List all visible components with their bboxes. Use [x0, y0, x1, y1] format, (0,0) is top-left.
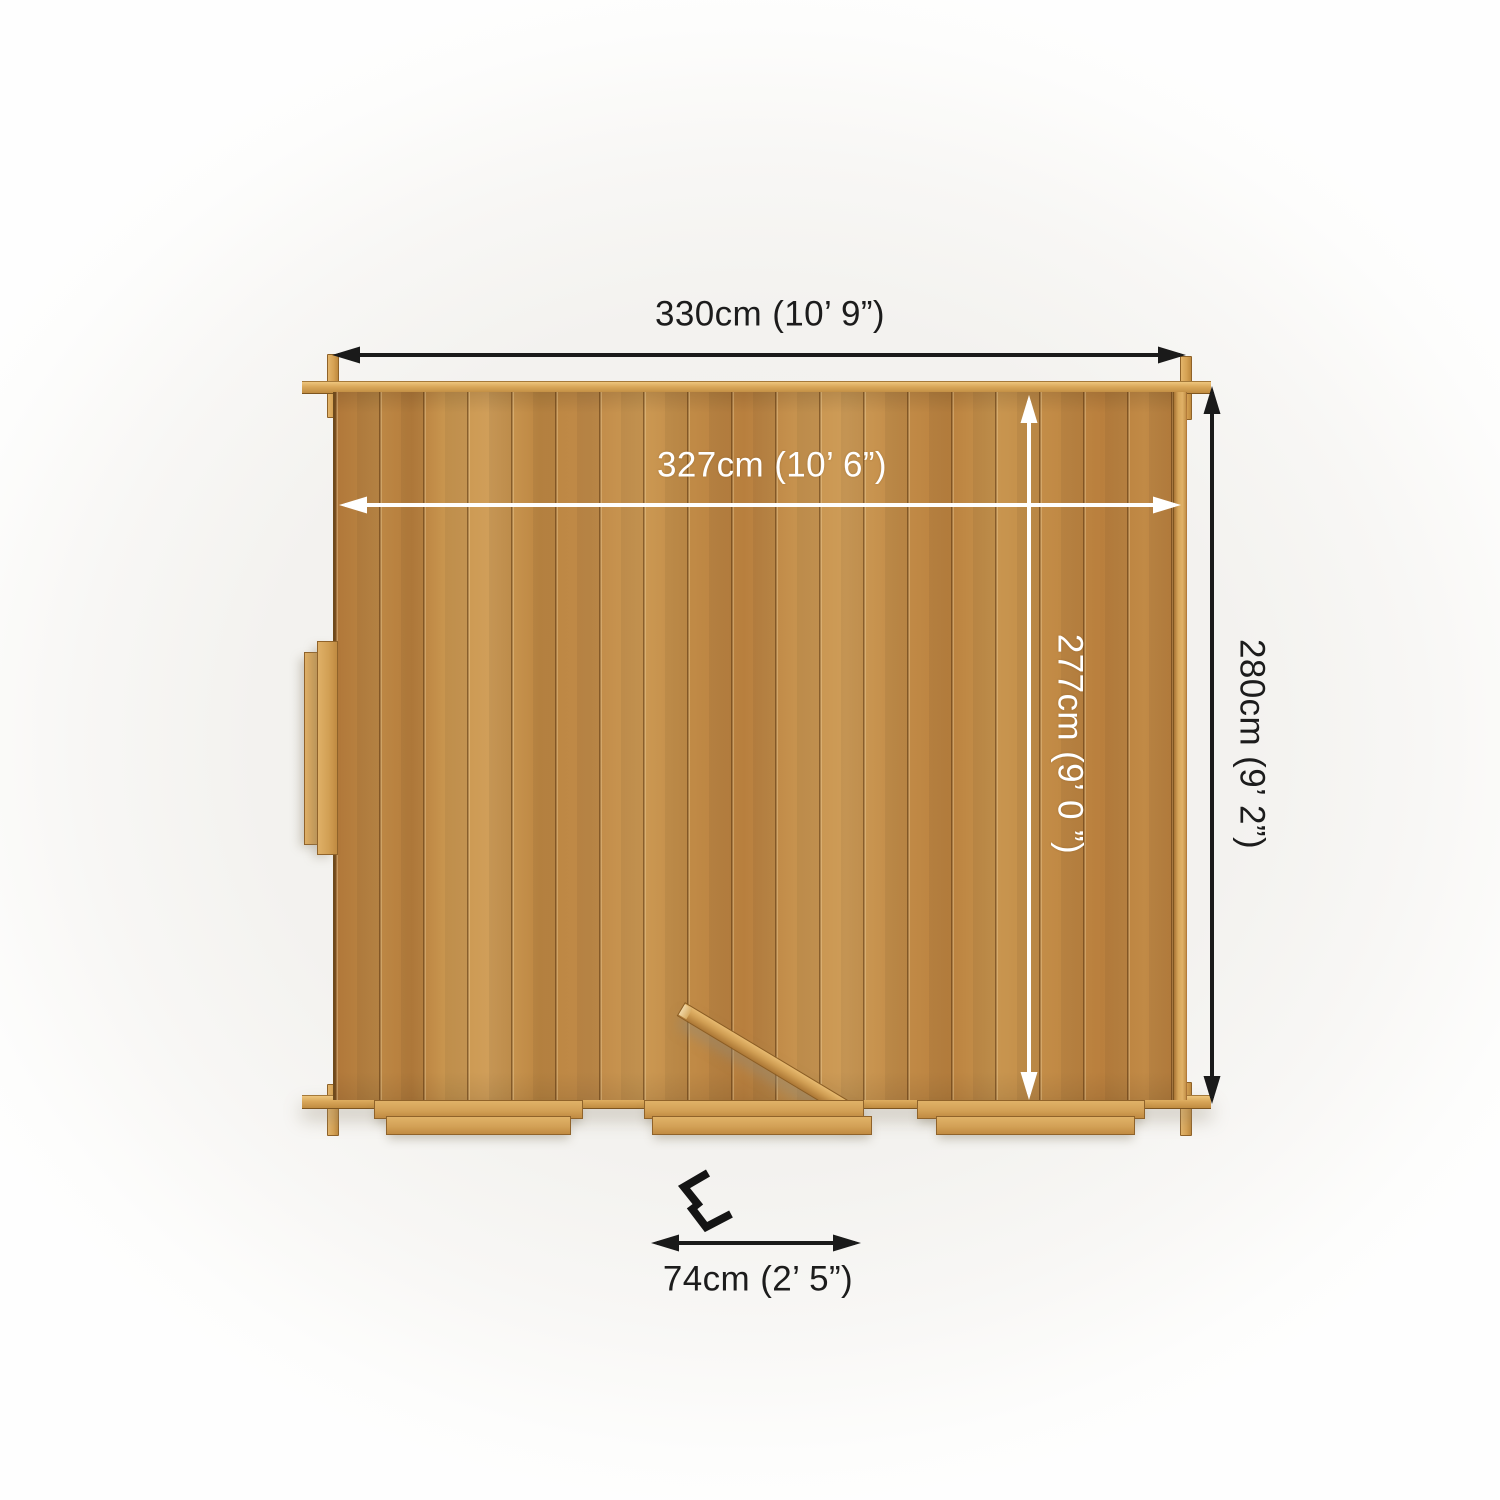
dim-inner-depth-label: 277cm (9’ 0 ”): [1053, 634, 1088, 854]
dim-door-width-label: 74cm (2’ 5”): [663, 1262, 853, 1297]
dim-outer-depth-label: 280cm (9’ 2”): [1235, 639, 1270, 849]
dim-inner-width-label: 327cm (10’ 6”): [657, 448, 887, 483]
dim-outer-width-label: 330cm (10’ 9”): [655, 297, 885, 332]
dim-door-width-arrow: [651, 1235, 861, 1252]
door-handle: [684, 1173, 731, 1227]
product-diagram: 330cm (10’ 9”) 327cm (10’ 6”) 277cm (9’ …: [0, 0, 1500, 1500]
dim-inner-depth-arrow: [1021, 395, 1038, 1100]
dim-outer-depth-arrow: [1204, 386, 1221, 1104]
dim-inner-width-arrow: [339, 497, 1181, 514]
dim-outer-width-arrow: [332, 347, 1186, 364]
